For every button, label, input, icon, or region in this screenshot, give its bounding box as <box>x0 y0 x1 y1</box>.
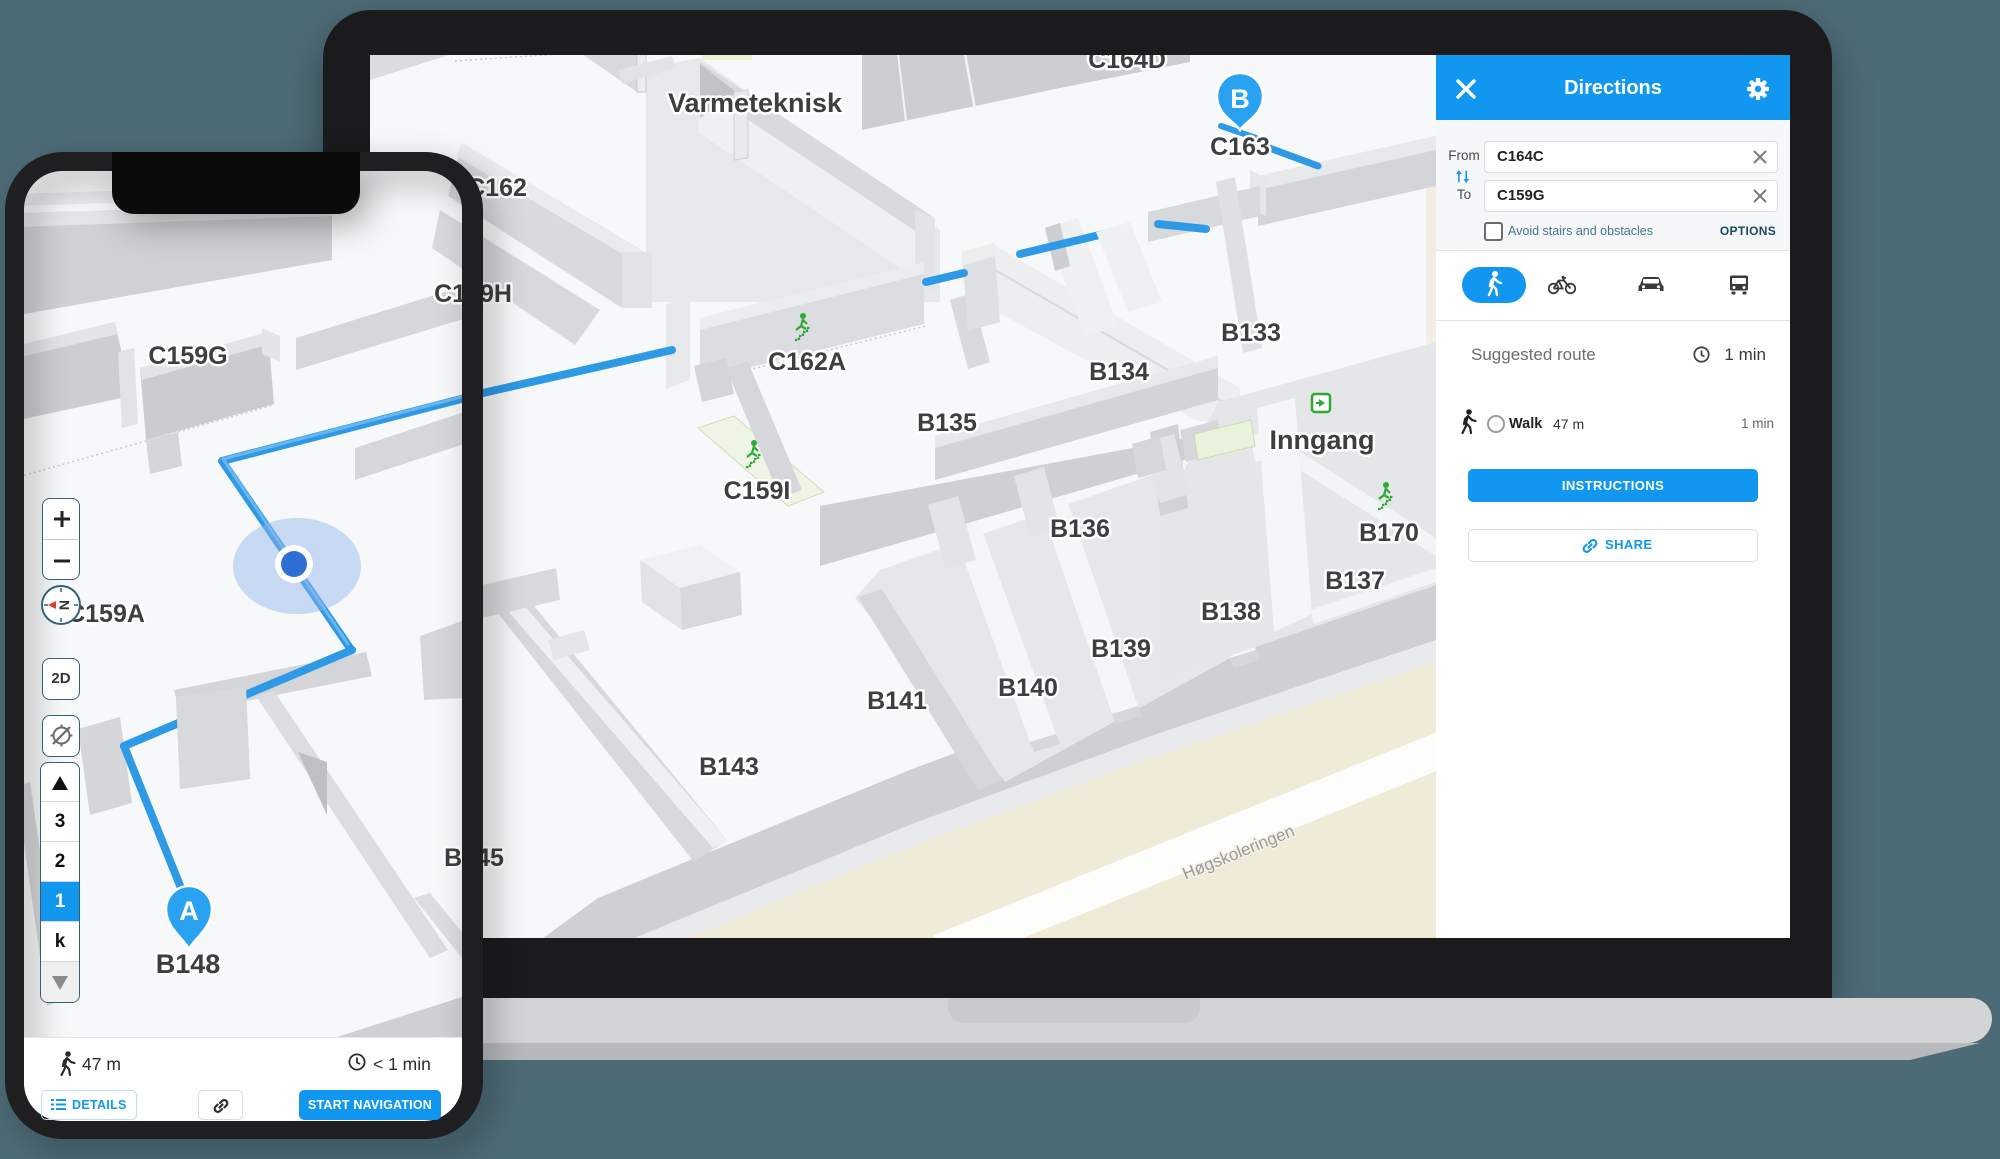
svg-text:N: N <box>56 600 72 610</box>
